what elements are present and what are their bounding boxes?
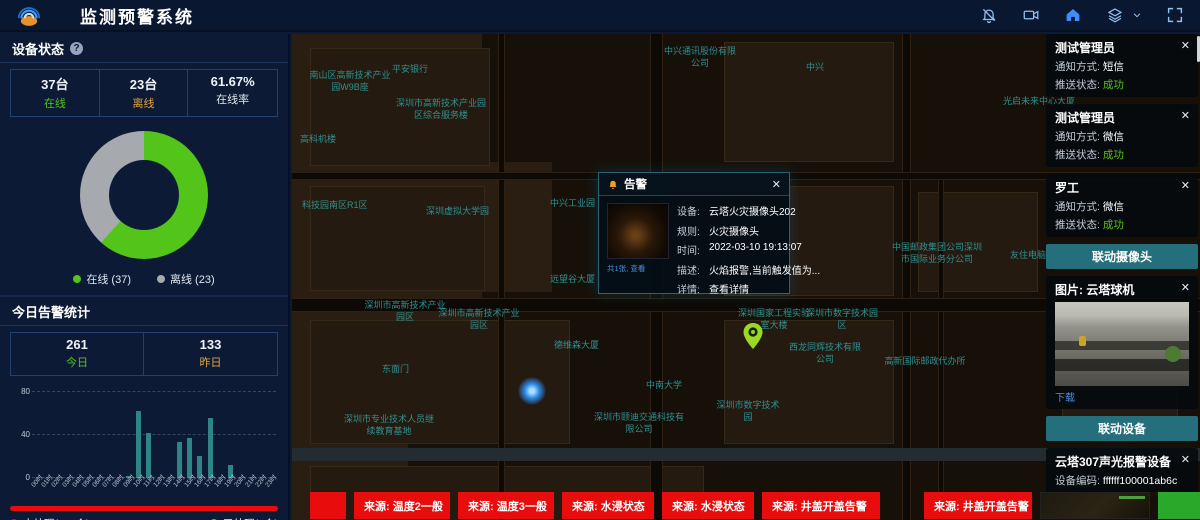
map-label: 中兴工业园 [550,198,595,210]
bar-column [256,388,266,478]
notification-card: 罗工 ✕ 通知方式: 微信 推送状态: 成功 [1046,174,1198,237]
snapshot-caption-link[interactable]: 共1张, 查看 [607,263,669,274]
home-icon[interactable] [1064,6,1082,24]
ticker-item[interactable]: 来源: 水浸状态 [562,492,654,519]
map-label: 中国邮政集团公司深圳市国际业务分公司 [888,242,986,265]
bar-column [246,388,256,478]
bar-column [32,388,42,478]
time-label: 时间: [677,242,709,257]
stat-label: 在线率 [190,91,275,107]
camera-image[interactable] [1055,302,1189,386]
status-label: 推送状态: [1055,149,1100,161]
close-icon[interactable]: ✕ [1181,453,1190,466]
map-label: 深圳市专业技术人员继续教育基地 [340,414,438,437]
notification-name: 测试管理员 [1055,39,1189,56]
notification-card: 测试管理员 ✕ 通知方式: 短信 推送状态: 成功 [1046,34,1198,97]
stat-cell: 23台 离线 [100,70,189,116]
map-label: 科技园南区R1区 [302,200,368,212]
method-value: 微信 [1103,131,1124,143]
alert-popup-header: 告警 ✕ [599,173,789,196]
bar-column [185,388,195,478]
stat-label: 昨日 [146,354,275,370]
status-value: 成功 [1103,79,1124,91]
chevron-down-icon[interactable] [1132,10,1142,20]
device-donut-chart [0,121,288,269]
alert-snapshot-image[interactable] [607,203,669,259]
stat-label: 今日 [13,354,141,370]
stat-value: 133 [146,337,275,352]
map-label: 中兴 [806,62,824,74]
right-sidebar: 测试管理员 ✕ 通知方式: 短信 推送状态: 成功 测试管理员 ✕ 通知方式: … [1046,34,1198,492]
donut-hole [109,160,179,230]
unprocessed-legend: 未处理(261个) [10,516,90,520]
bar-x-label: 23时 [266,480,276,498]
ticker-item[interactable]: 来源: 水浸状态 [662,492,754,519]
progress-unprocessed [10,506,278,511]
stat-value: 61.67% [190,74,275,89]
map-label: 深圳市数字技术园区 [806,308,878,331]
processed-legend: 已处理(0个) [210,516,278,520]
alert-bar-chart: 80 40 0 00时01时02时03时04时05时06时07时08时09时10… [8,382,280,498]
alert-bar-plot [32,388,276,478]
map-road [938,174,944,520]
map-label: 东面门 [382,364,409,376]
help-icon[interactable]: ? [70,42,83,55]
page-title: 监测预警系统 [80,3,194,28]
close-icon[interactable]: ✕ [1181,281,1190,294]
camera-card-title: 图片: 云塔球机 [1055,281,1189,298]
bar-column [154,388,164,478]
alarm-pulse-marker[interactable] [518,377,546,405]
method-value: 微信 [1103,201,1124,213]
map-block [724,42,894,162]
close-icon[interactable]: ✕ [1181,39,1190,52]
legend-dot [73,275,81,283]
close-icon[interactable]: ✕ [1181,179,1190,192]
alert-progress: 未处理(261个) 已处理(0个) [10,506,278,520]
camera-image-detail [1165,346,1181,362]
legend-item: 离线 (23) [157,271,215,287]
device-status-section: 设备状态 ? 37台 在线 23台 离线 61.67% 在线率 [0,34,288,287]
close-icon[interactable]: ✕ [772,178,781,191]
alert-bar-xlabels: 00时01时02时03时04时05时06时07时08时09时10时11时12时1… [32,480,276,498]
device-status-title: 设备状态 [12,39,64,58]
map-label: 西龙同辉技术有限公司 [788,342,862,365]
map-label: 南山区高新技术产业园W9B座 [306,70,394,93]
ticker-item-text: 来源: 井盖开盖告警 [772,498,867,514]
method-label: 通知方式: [1055,61,1100,73]
bar-column [103,388,113,478]
alert-bell-icon [607,178,619,190]
donut-legend: 在线 (37) 离线 (23) [0,271,288,287]
device-value: 云塔火灾摄像头202 [709,203,796,218]
stat-value: 23台 [102,74,186,93]
map-label: 高科机楼 [300,134,336,146]
progress-bar [10,506,278,511]
video-camera-icon[interactable] [1022,6,1040,24]
bar-column [266,388,276,478]
stat-label: 离线 [102,95,186,111]
notification-name: 罗工 [1055,179,1189,196]
bar-column [225,388,235,478]
bar-column [164,388,174,478]
alert-popup-title: 告警 [624,176,647,192]
detail-label: 详情: [677,281,709,296]
ticker-item-text: 来源: 温度2一般 [364,498,443,514]
linked-device-card: 云塔307声光报警设备 ✕ 设备编码: ffffff100001ab6c 调用服… [1046,448,1198,492]
status-label: 推送状态: [1055,219,1100,231]
alert-ticker: 来源: 温度2一般 来源: 温度3一般 来源: 水浸状态 来源: 水浸状态 来源… [292,490,1200,520]
bar-column [134,388,144,478]
ticker-item[interactable]: 来源: 井盖开盖告警 [762,492,880,519]
map-label: 深圳虚拟大学园 [426,206,489,218]
left-panel: 设备状态 ? 37台 在线 23台 离线 61.67% 在线率 [0,34,290,520]
bar-column [205,388,215,478]
fullscreen-icon[interactable] [1166,6,1184,24]
bar-column [113,388,123,478]
linked-camera-section-button[interactable]: 联动摄像头 [1046,244,1198,269]
alert-popup: 告警 ✕ 共1张, 查看 设备:云塔火灾摄像头202 规则:火灾摄像头 时间:2… [598,172,790,294]
rule-value: 火灾摄像头 [709,223,759,238]
view-detail-link[interactable]: 查看详情 [709,281,749,296]
time-value: 2022-03-10 19:13:07 [709,242,802,257]
legend-label: 在线 (37) [86,274,131,286]
bar-column [174,388,184,478]
legend-dot [157,275,165,283]
map-label: 深圳市颐迪交通科技有限公司 [592,412,686,435]
map-label: 深圳市数字技术园 [716,400,780,423]
bar-column [124,388,134,478]
status-value: 成功 [1103,149,1124,161]
map-label: 中兴通讯股份有限公司 [660,46,740,69]
y-tick-40: 40 [12,430,30,439]
linked-device-section-button[interactable]: 联动设备 [1046,416,1198,441]
device-status-header: 设备状态 ? [0,34,288,63]
map-label: 中南大学 [646,380,682,392]
notification-cards: 测试管理员 ✕ 通知方式: 短信 推送状态: 成功 测试管理员 ✕ 通知方式: … [1046,34,1198,237]
stat-label: 在线 [13,95,97,111]
bar-column [42,388,52,478]
notification-name: 测试管理员 [1055,109,1189,126]
ticker-item-text: 来源: 井盖开盖告警 [934,498,1029,514]
camera-image-detail [1079,336,1086,346]
ticker-item[interactable]: 来源: 温度3一般 [458,492,554,519]
map-label: 远望谷大厦 [550,274,595,286]
desc-value: 火焰报警,当前触发值为... [709,262,820,277]
stat-cell: 261 今日 [11,333,144,375]
app-logo-icon [16,2,42,28]
today-alerts-header: 今日告警统计 [0,295,288,326]
legend-item: 在线 (37) [73,271,131,287]
status-value: 成功 [1103,219,1124,231]
rule-label: 规则: [677,223,709,238]
y-tick-80: 80 [12,387,30,396]
ticker-item[interactable] [310,492,346,519]
bar-column [93,388,103,478]
camera-card: 图片: 云塔球机 ✕ 下载 [1046,276,1198,409]
device-donut [80,131,208,259]
code-label: 设备编码: [1055,475,1100,487]
map-label: 高新国际邮政代办所 [870,356,980,368]
device-label: 设备: [677,203,709,218]
bar-column [63,388,73,478]
method-label: 通知方式: [1055,201,1100,213]
map-label: 深圳市高新技术产业园区 [436,308,522,331]
stat-cell: 133 昨日 [144,333,277,375]
app-header: 监测预警系统 [0,0,1200,32]
y-tick-0: 0 [12,473,30,482]
notification-card: 测试管理员 ✕ 通知方式: 微信 推送状态: 成功 [1046,104,1198,167]
bar-column [195,388,205,478]
bar-column [144,388,154,478]
bar-column [235,388,245,478]
desc-label: 描述: [677,262,709,277]
stat-cell: 61.67% 在线率 [188,70,277,116]
today-alerts-stats: 261 今日 133 昨日 [10,332,278,376]
bar-column [73,388,83,478]
map-label: 平安银行 [392,64,428,76]
stat-value: 261 [13,337,141,352]
map-label: 德维森大厦 [554,340,599,352]
layers-icon[interactable] [1106,6,1124,24]
ticker-item-text: 来源: 水浸状态 [572,498,645,514]
status-label: 推送状态: [1055,79,1100,91]
bar-column [83,388,93,478]
device-status-stats: 37台 在线 23台 离线 61.67% 在线率 [10,69,278,117]
bar-column [215,388,225,478]
stat-value: 37台 [13,74,97,93]
location-pin-icon[interactable] [742,322,764,350]
bell-off-icon[interactable] [980,6,998,24]
ticker-item[interactable]: 来源: 井盖开盖告警 [924,492,1032,519]
bar-column [52,388,62,478]
device-card-title: 云塔307声光报警设备 [1055,453,1189,470]
ticker-item[interactable]: 来源: 温度2一般 [354,492,450,519]
method-label: 通知方式: [1055,131,1100,143]
ticker-item-text: 来源: 水浸状态 [672,498,745,514]
download-link[interactable]: 下载 [1055,389,1189,404]
method-value: 短信 [1103,61,1124,73]
stat-cell: 37台 在线 [11,70,100,116]
legend-label: 离线 (23) [170,274,215,286]
today-alerts-section: 今日告警统计 261 今日 133 昨日 80 40 0 00 [0,295,288,520]
code-value: ffffff100001ab6c [1103,475,1177,487]
close-icon[interactable]: ✕ [1181,109,1190,122]
ticker-item-text: 来源: 温度3一般 [468,498,547,514]
map-label: 深圳市高新技术产业园区综合服务楼 [392,98,490,121]
today-alerts-title: 今日告警统计 [12,302,90,321]
ticker-item[interactable] [1040,492,1150,519]
ticker-item[interactable] [1158,492,1200,519]
